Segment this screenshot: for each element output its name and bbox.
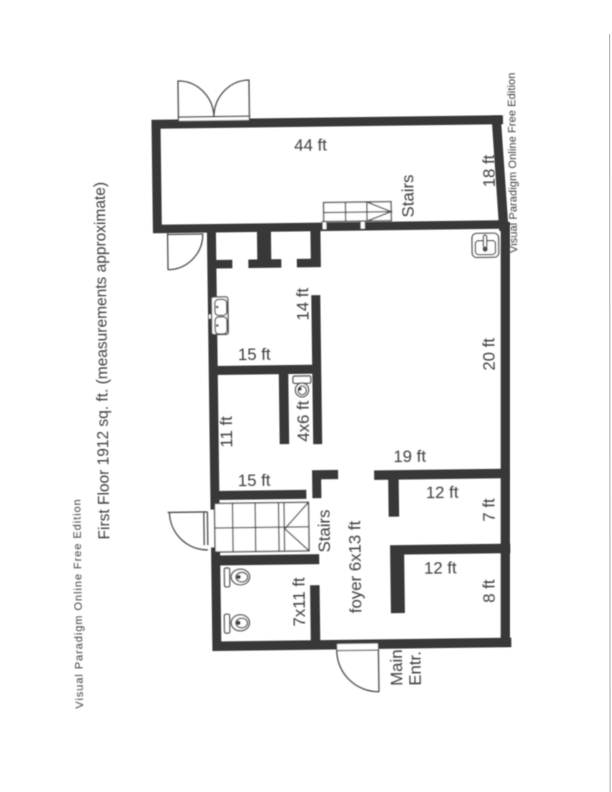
svg-text:19 ft: 19 ft <box>393 447 426 466</box>
svg-text:Stairs: Stairs <box>314 509 334 552</box>
svg-text:First Floor 1912 sq. ft. (meas: First Floor 1912 sq. ft. (measurements a… <box>92 182 114 540</box>
svg-text:foyer 6x13 ft: foyer 6x13 ft <box>345 520 365 613</box>
svg-text:7 ft: 7 ft <box>480 498 499 522</box>
svg-text:15 ft: 15 ft <box>238 345 271 364</box>
svg-text:8 ft: 8 ft <box>480 579 499 603</box>
svg-text:44 ft: 44 ft <box>294 135 327 154</box>
svg-text:15 ft: 15 ft <box>238 471 271 490</box>
svg-text:Stairs: Stairs <box>398 174 418 217</box>
svg-text:4x6 ft: 4x6 ft <box>294 400 314 442</box>
svg-text:14 ft: 14 ft <box>293 287 312 320</box>
svg-text:11 ft: 11 ft <box>217 416 236 448</box>
svg-text:Visual Paradigm Online Free Ed: Visual Paradigm Online Free Edition <box>71 498 86 709</box>
svg-text:12 ft: 12 ft <box>426 483 459 502</box>
svg-text:20 ft: 20 ft <box>480 338 499 371</box>
svg-text:Entr.: Entr. <box>406 651 425 686</box>
svg-text:Main: Main <box>387 649 406 686</box>
svg-text:12 ft: 12 ft <box>424 558 457 577</box>
svg-text:7x11 ft: 7x11 ft <box>290 577 310 627</box>
